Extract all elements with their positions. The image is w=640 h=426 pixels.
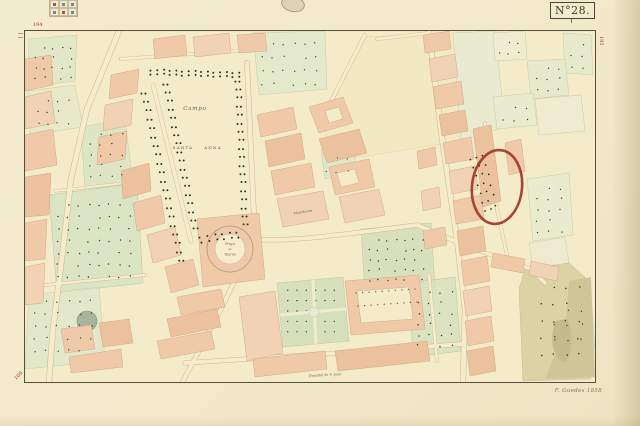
santa-label: SANTA — [173, 145, 193, 150]
edge-ref-top-left: 194 — [33, 22, 43, 28]
anna-label: ANNA — [203, 145, 222, 150]
sheet-number: N°28. — [555, 4, 590, 17]
edge-ref-bottom-left: 109 — [13, 371, 24, 382]
sheet-index-grid — [50, 0, 77, 16]
sheet-number-tick — [571, 19, 572, 23]
paper-edge-shadow — [612, 0, 640, 426]
engraver-signature: F. Guedes 1858 — [510, 388, 602, 394]
embossed-stamp — [280, 0, 307, 14]
campo-label: Campo — [183, 106, 207, 112]
sheet-number-box: N°28. — [550, 2, 595, 19]
paper-bottom-shadow — [0, 416, 640, 426]
edge-ref-right-top: 195 — [598, 36, 604, 46]
edge-ref-left-marks — [18, 33, 23, 41]
map-sheet-page: N°28. 194 195 109 — [0, 0, 640, 426]
formal-garden — [277, 277, 349, 347]
bullring-label-2: de — [228, 247, 232, 251]
bullring-label-3: Touros — [224, 253, 236, 257]
map-canvas: Campo SANTA ANNA Praça de Touros Matadou… — [25, 31, 595, 382]
bullring-label-1: Praça — [224, 242, 235, 246]
